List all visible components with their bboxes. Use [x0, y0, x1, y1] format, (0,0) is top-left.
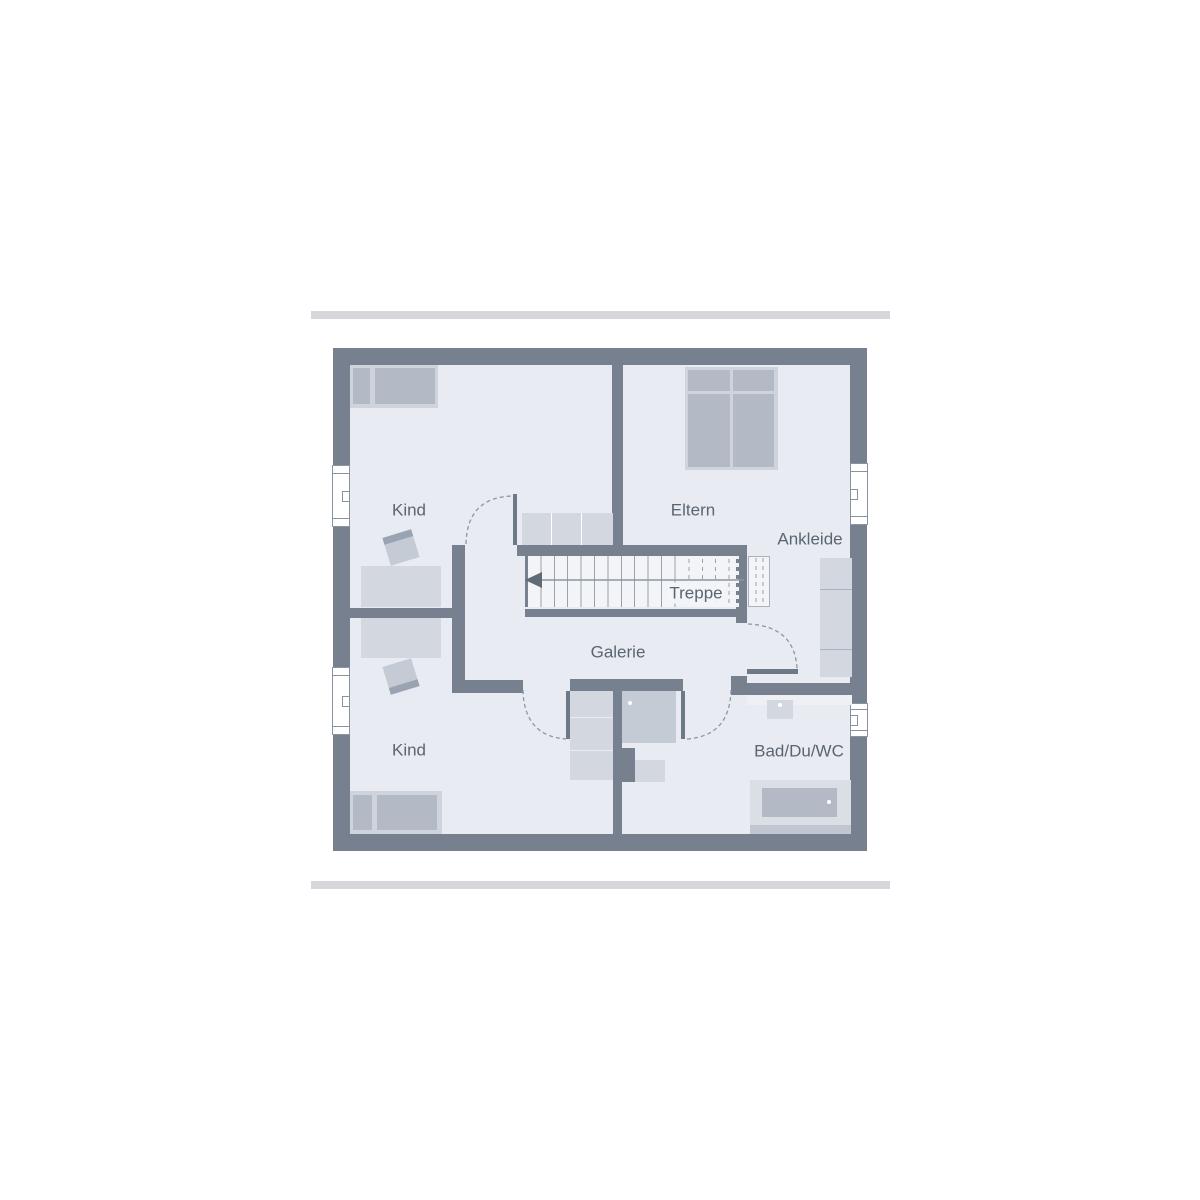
bed-eltern [685, 367, 778, 470]
shower [622, 691, 676, 743]
door-leaf-ankleide [747, 669, 798, 674]
wall-stair-rail [525, 609, 742, 617]
room-label-kind-bottom: Kind [392, 742, 426, 759]
bed-pillow [353, 795, 372, 830]
wall-hall-vertical [452, 545, 465, 693]
desk-kind-bottom [361, 618, 441, 658]
bed-pillow-right [733, 370, 774, 391]
window-handle-icon [342, 491, 350, 502]
floor-plan-canvas: Kind Eltern Ankleide Treppe Galerie Kind… [0, 0, 1200, 1200]
washbasin [767, 700, 793, 719]
window-frame-line [333, 518, 349, 519]
wc [635, 760, 665, 782]
wardrobe-divider [820, 589, 852, 590]
window-frame-line [333, 675, 349, 676]
room-label-eltern: Eltern [671, 502, 715, 519]
closet-divider [570, 750, 613, 751]
shower-tray-band [747, 695, 852, 705]
bottom-accent-bar [311, 881, 890, 889]
stair-flight-above [748, 556, 770, 607]
wardrobe-ankleide [820, 558, 852, 677]
window-bad [850, 703, 868, 737]
washbasin-faucet-icon [778, 703, 782, 707]
wall-stair-top [517, 545, 747, 556]
wall-galerie-left-piece [452, 680, 523, 693]
bed-mattress-right [733, 394, 774, 467]
bed-mattress-left [688, 394, 730, 467]
bed-mattress [377, 795, 437, 830]
top-accent-bar [311, 311, 890, 319]
window-handle-icon [850, 715, 858, 726]
bed-pillow [353, 368, 370, 404]
sideboard-divider [551, 513, 552, 545]
window-frame-line [851, 730, 867, 731]
bed-pillow-left [688, 370, 730, 391]
wardrobe-divider [820, 649, 852, 650]
room-label-kind-top: Kind [392, 502, 426, 519]
desk-kind-top [361, 566, 441, 607]
window-frame-line [333, 726, 349, 727]
wall-bath-vertical [613, 691, 622, 835]
door-leaf-bad [681, 691, 685, 739]
wall-closet-top [570, 679, 683, 691]
window-kind-bottom [332, 667, 350, 735]
bed-mattress [375, 368, 435, 404]
room-label-bad: Bad/Du/WC [754, 743, 844, 760]
bathtub-faucet-icon [827, 800, 831, 804]
bathtub-step [750, 825, 851, 834]
sideboard-divider [581, 513, 582, 545]
window-frame-line [851, 516, 867, 517]
closet-divider [570, 717, 613, 718]
bed-kind-top [350, 365, 438, 408]
window-frame-line [851, 471, 867, 472]
stair-treads-solid [528, 556, 676, 607]
window-frame-line [333, 473, 349, 474]
bathtub-surround [750, 780, 851, 825]
wall-bad-stub [731, 676, 747, 695]
door-leaf-kind-top [513, 494, 517, 545]
window-handle-icon [342, 696, 350, 707]
bathtub [762, 788, 837, 817]
window-kind-top [332, 465, 350, 527]
window-frame-line [851, 709, 867, 710]
window-handle-icon [850, 489, 858, 500]
room-label-treppe: Treppe [666, 583, 725, 604]
bed-kind-bottom [350, 791, 442, 834]
room-label-galerie: Galerie [591, 644, 646, 661]
window-eltern [850, 463, 868, 525]
wall-kind-divider [350, 608, 453, 618]
wall-bad-top [747, 683, 852, 695]
shower-drain-icon [628, 701, 632, 705]
sideboard-hall [522, 513, 613, 545]
wall-wc-stub [622, 748, 635, 782]
room-label-ankleide: Ankleide [777, 531, 842, 548]
wall-kind-eltern [612, 365, 623, 545]
bath-closet [570, 691, 613, 780]
